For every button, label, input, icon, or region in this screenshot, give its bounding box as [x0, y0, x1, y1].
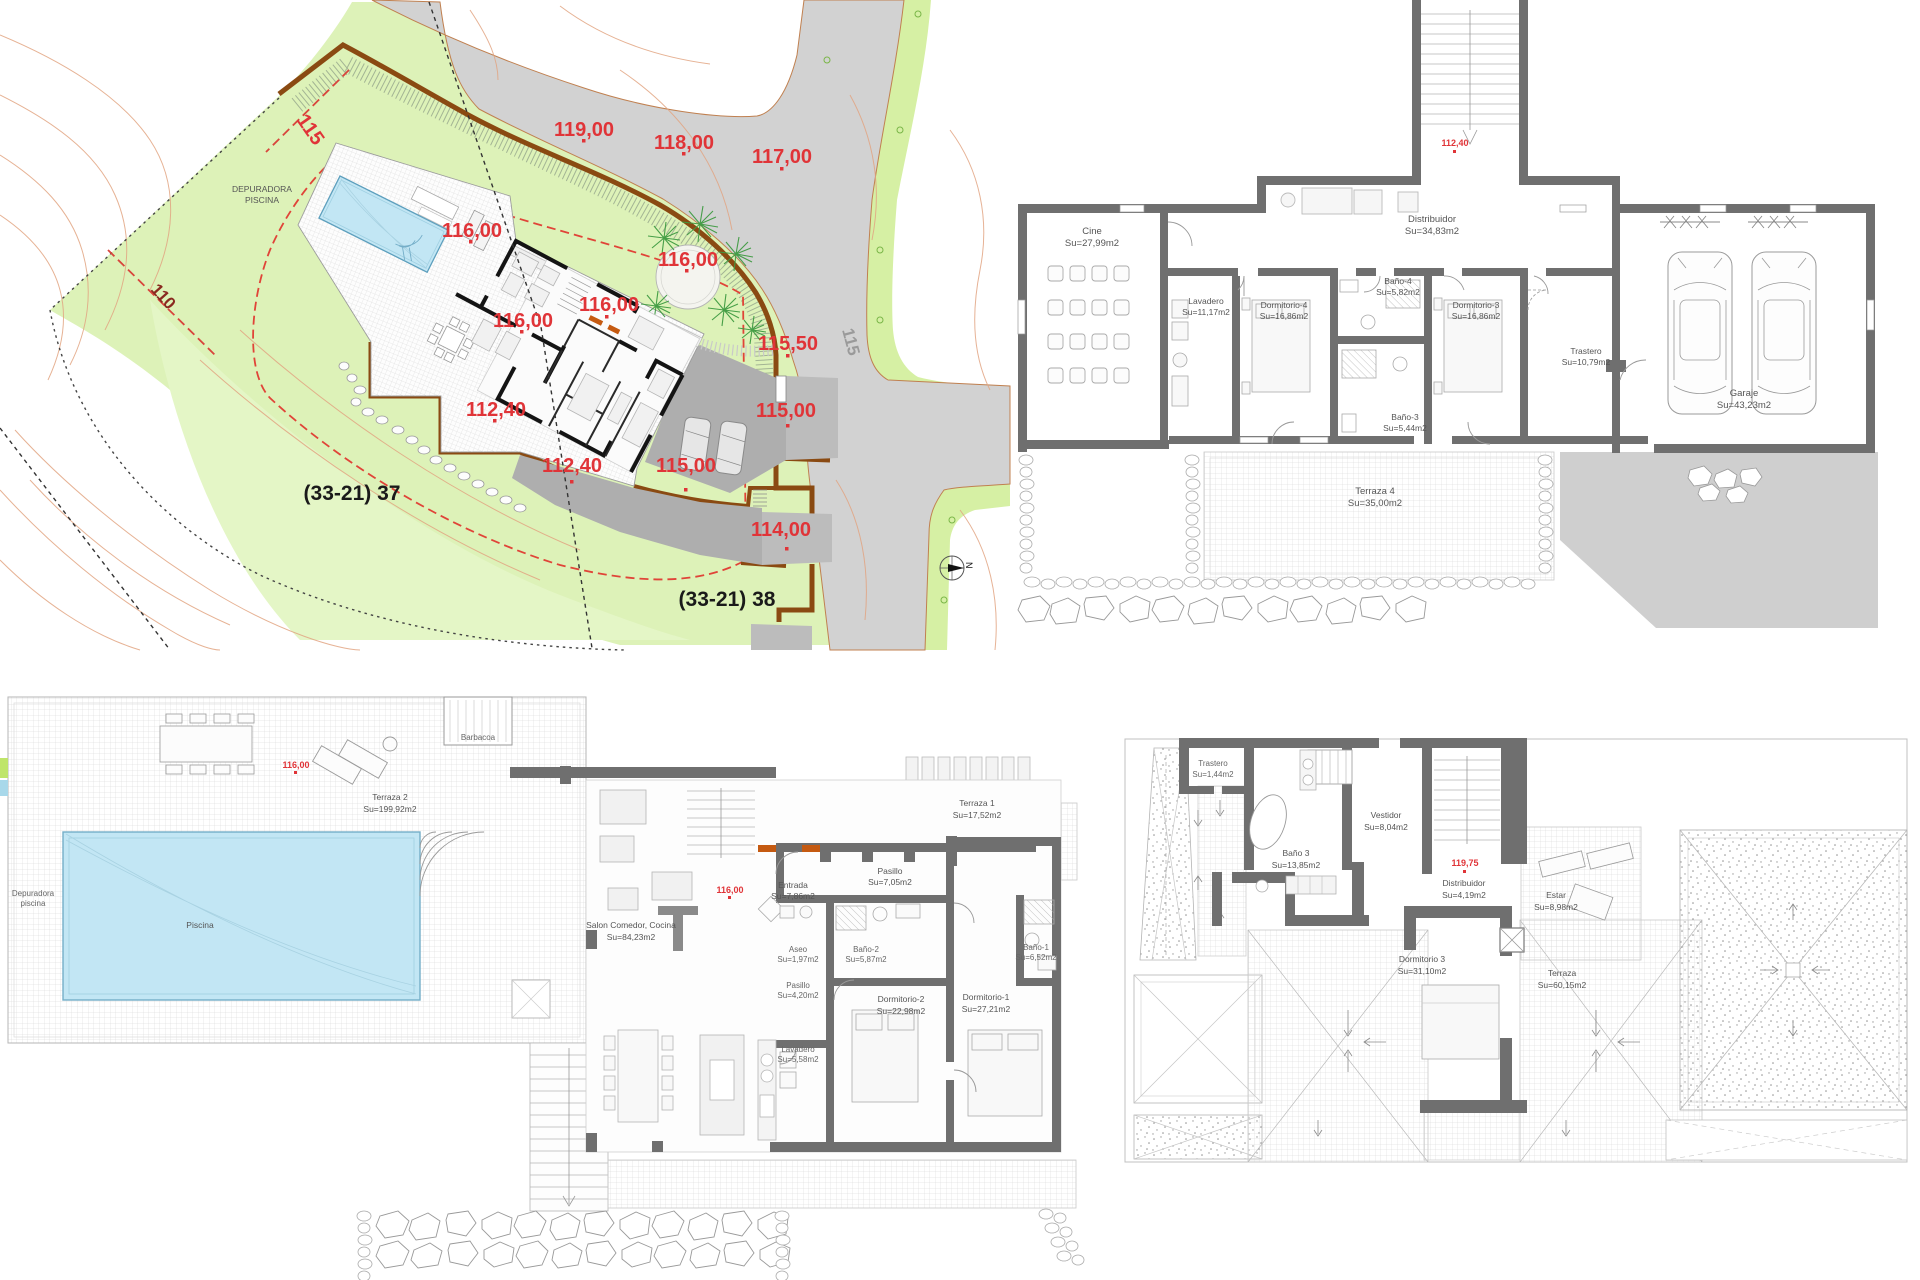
- svg-text:Pasillo: Pasillo: [786, 981, 810, 990]
- svg-text:119,75: 119,75: [1451, 858, 1478, 868]
- svg-text:Su=8,98m2: Su=8,98m2: [1534, 902, 1578, 912]
- svg-text:118,00: 118,00: [654, 132, 714, 154]
- svg-text:Trastero: Trastero: [1570, 346, 1602, 356]
- svg-text:Su=5,44m2: Su=5,44m2: [1383, 423, 1427, 433]
- svg-text:Dormitorio-4: Dormitorio-4: [1261, 300, 1308, 310]
- svg-text:Su=1,44m2: Su=1,44m2: [1192, 770, 1234, 779]
- svg-text:112,40: 112,40: [542, 455, 602, 477]
- svg-text:Su=84,23m2: Su=84,23m2: [607, 932, 656, 942]
- svg-text:Terraza: Terraza: [1548, 968, 1577, 978]
- svg-text:Su=11,17m2: Su=11,17m2: [1182, 307, 1230, 317]
- svg-text:116,00: 116,00: [658, 249, 718, 271]
- svg-text:Su=27,21m2: Su=27,21m2: [962, 1004, 1011, 1014]
- svg-text:Su=8,04m2: Su=8,04m2: [1364, 822, 1408, 832]
- svg-text:Terraza 4: Terraza 4: [1355, 486, 1395, 497]
- svg-text:Su=7,86m2: Su=7,86m2: [771, 891, 815, 901]
- svg-text:112,40: 112,40: [466, 399, 526, 421]
- svg-text:Distribuidor: Distribuidor: [1408, 214, 1456, 225]
- svg-text:114,00: 114,00: [751, 519, 811, 541]
- svg-text:Su=60,15m2: Su=60,15m2: [1538, 980, 1587, 990]
- svg-text:Su=27,99m2: Su=27,99m2: [1065, 238, 1119, 249]
- svg-text:Su=6,52m2: Su=6,52m2: [1015, 953, 1057, 962]
- svg-text:Su=43,23m2: Su=43,23m2: [1717, 400, 1771, 411]
- svg-text:Baño-3: Baño-3: [1391, 412, 1419, 422]
- svg-text:DEPURADORA: DEPURADORA: [232, 184, 292, 194]
- svg-text:Su=16,86m2: Su=16,86m2: [1452, 311, 1501, 321]
- svg-text:Su=5,87m2: Su=5,87m2: [845, 955, 887, 964]
- svg-text:Pasillo: Pasillo: [877, 866, 902, 876]
- svg-text:(33-21) 37: (33-21) 37: [304, 482, 401, 505]
- svg-text:Dormitorio-3: Dormitorio-3: [1453, 300, 1500, 310]
- svg-text:116,00: 116,00: [282, 760, 309, 770]
- svg-text:Dormitorio 3: Dormitorio 3: [1399, 954, 1446, 964]
- svg-text:Baño-2: Baño-2: [853, 945, 879, 954]
- svg-text:Cine: Cine: [1082, 226, 1102, 237]
- svg-text:116,00: 116,00: [579, 294, 639, 316]
- svg-text:Vestidor: Vestidor: [1371, 810, 1402, 820]
- svg-text:Aseo: Aseo: [789, 945, 808, 954]
- svg-text:Lavadero: Lavadero: [781, 1045, 815, 1054]
- svg-text:Terraza 2: Terraza 2: [372, 792, 408, 802]
- svg-text:Su=10,79m2: Su=10,79m2: [1562, 357, 1611, 367]
- svg-text:Su=4,19m2: Su=4,19m2: [1442, 890, 1486, 900]
- svg-text:Su=31,10m2: Su=31,10m2: [1398, 966, 1447, 976]
- svg-text:Salon Comedor, Cocina: Salon Comedor, Cocina: [586, 920, 676, 930]
- svg-text:Su=35,00m2: Su=35,00m2: [1348, 498, 1402, 509]
- svg-text:Terraza 1: Terraza 1: [959, 798, 995, 808]
- svg-text:116,00: 116,00: [442, 220, 502, 242]
- svg-text:Garaje: Garaje: [1730, 388, 1759, 399]
- svg-text:Su=34,83m2: Su=34,83m2: [1405, 226, 1459, 237]
- svg-text:Piscina: Piscina: [186, 920, 214, 930]
- svg-text:Su=199,92m2: Su=199,92m2: [363, 804, 416, 814]
- svg-text:Su=22,98m2: Su=22,98m2: [877, 1006, 926, 1016]
- svg-text:piscina: piscina: [21, 899, 46, 908]
- svg-text:Su=5,58m2: Su=5,58m2: [777, 1055, 819, 1064]
- svg-text:PISCINA: PISCINA: [245, 195, 279, 205]
- svg-text:Estar: Estar: [1546, 890, 1566, 900]
- svg-text:Lavadero: Lavadero: [1188, 296, 1224, 306]
- svg-text:Su=7,05m2: Su=7,05m2: [868, 877, 912, 887]
- svg-text:Dormitorio-2: Dormitorio-2: [878, 994, 925, 1004]
- svg-text:Su=5,82m2: Su=5,82m2: [1376, 287, 1420, 297]
- svg-text:115,00: 115,00: [756, 400, 816, 422]
- svg-text:Trastero: Trastero: [1198, 759, 1228, 768]
- svg-text:115,00: 115,00: [656, 455, 716, 477]
- svg-text:117,00: 117,00: [752, 146, 812, 168]
- svg-text:Su=13,85m2: Su=13,85m2: [1272, 860, 1321, 870]
- svg-text:Su=16,86m2: Su=16,86m2: [1260, 311, 1309, 321]
- svg-text:(33-21) 38: (33-21) 38: [679, 588, 776, 611]
- svg-text:Entrada: Entrada: [778, 880, 808, 890]
- svg-text:Su=1,97m2: Su=1,97m2: [777, 955, 819, 964]
- svg-text:112,40: 112,40: [1441, 138, 1468, 148]
- svg-text:Baño-1: Baño-1: [1023, 943, 1049, 952]
- svg-text:Dormitorio-1: Dormitorio-1: [963, 992, 1010, 1002]
- svg-text:N: N: [964, 562, 974, 569]
- svg-text:116,00: 116,00: [716, 885, 743, 895]
- svg-text:115,50: 115,50: [758, 333, 818, 355]
- svg-text:Barbacoa: Barbacoa: [461, 733, 496, 742]
- svg-text:119,00: 119,00: [554, 119, 614, 141]
- svg-text:Depuradora: Depuradora: [12, 889, 55, 898]
- svg-text:116,00: 116,00: [493, 310, 553, 332]
- svg-text:Baño 3: Baño 3: [1283, 848, 1310, 858]
- svg-text:Su=4,20m2: Su=4,20m2: [777, 991, 819, 1000]
- svg-text:Su=17,52m2: Su=17,52m2: [953, 810, 1002, 820]
- svg-text:Distribuidor: Distribuidor: [1443, 878, 1486, 888]
- svg-text:Baño-4: Baño-4: [1384, 276, 1412, 286]
